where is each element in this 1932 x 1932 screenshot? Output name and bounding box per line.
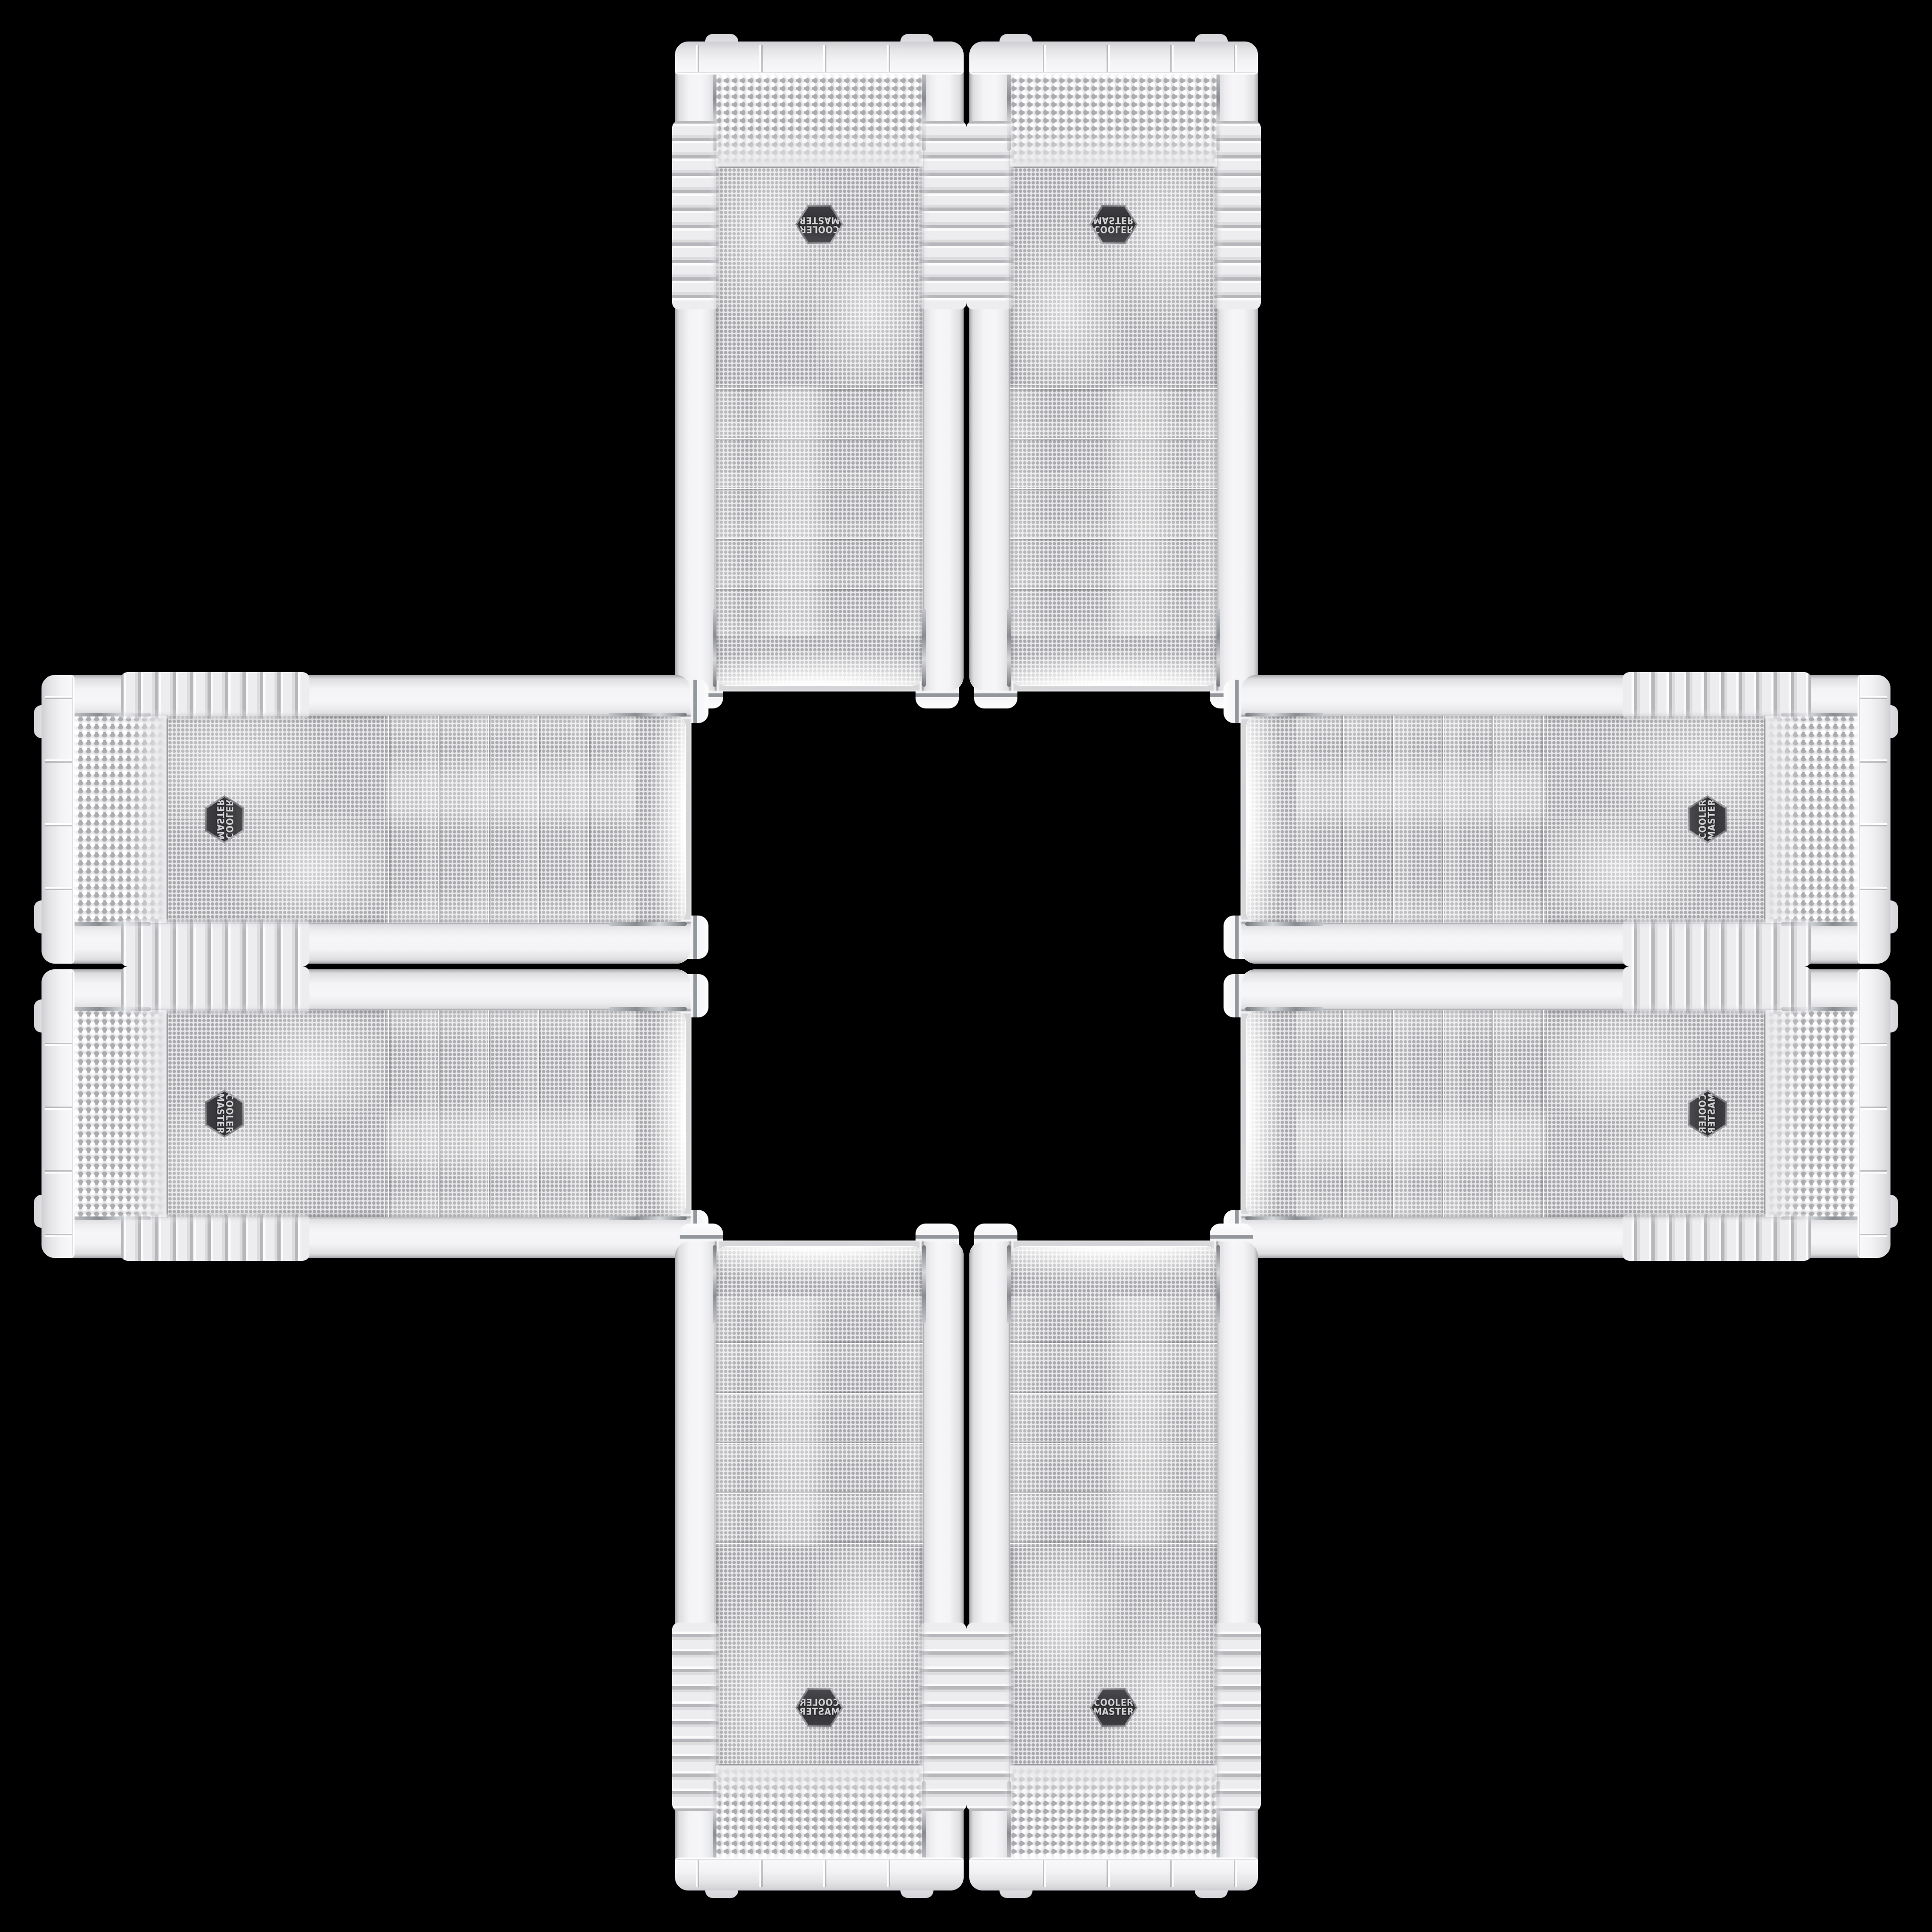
pc-case: COOLER MASTER	[675, 42, 964, 691]
chrome-trim-top-right	[713, 609, 716, 687]
side-grip-ribs-left	[919, 121, 966, 309]
pc-case: COOLER MASTER	[969, 42, 1258, 691]
cooler-master-logo-icon: COOLER MASTER	[207, 797, 242, 841]
side-grip-ribs-right	[1214, 1623, 1261, 1811]
cooler-master-logo-icon: COOLER MASTER	[1091, 207, 1136, 242]
drive-bay-strips	[1296, 716, 1546, 923]
logo-text-line1: COOLER	[799, 224, 839, 234]
side-grip-ribs-left	[966, 1623, 1014, 1811]
mesh-panel	[1246, 716, 1857, 923]
cooler-master-logo-icon: COOLER MASTER	[797, 1690, 841, 1725]
drive-bay-strips	[386, 716, 636, 923]
chrome-trim-top-left	[922, 1245, 926, 1323]
chrome-trim-top-right	[609, 1216, 687, 1220]
logo-text-line1: COOLER	[1094, 224, 1133, 234]
fan-mesh-area	[1546, 1010, 1764, 1217]
logo-text-line1: COOLER	[224, 799, 234, 839]
mesh-top-dome-highlight	[1246, 1010, 1298, 1217]
coarse-mesh-section	[75, 1010, 166, 1217]
segmented-bottom-cap	[1857, 675, 1890, 964]
logo-text-line2: MASTER	[215, 1093, 225, 1134]
segmented-bottom-cap	[1857, 969, 1890, 1258]
segmented-bottom-cap	[675, 42, 964, 75]
side-grip-ribs-right	[121, 1214, 309, 1261]
case-tile-bottom-left: COOLER MASTER	[675, 1241, 964, 1890]
fan-mesh-area	[1010, 1546, 1217, 1764]
chrome-trim-top-left	[609, 1007, 687, 1011]
side-grip-ribs-right	[1623, 1214, 1811, 1261]
case-tile-top-right: COOLER MASTER	[969, 42, 1258, 691]
side-grip-ribs-left	[966, 121, 1014, 309]
fan-mesh-area	[1010, 168, 1217, 386]
chrome-trim-top-left	[922, 609, 926, 687]
chrome-trim-top-left	[1245, 1007, 1323, 1011]
mesh-chrome-seam	[716, 166, 923, 168]
side-grip-ribs-left	[1623, 966, 1811, 1014]
coarse-mesh-section	[1010, 1766, 1217, 1857]
logo-text-line2: MASTER	[1707, 1093, 1717, 1134]
fan-mesh-area	[716, 168, 923, 386]
mesh-top-dome-highlight	[1010, 1246, 1217, 1298]
coarse-mesh-section	[1766, 716, 1857, 923]
pc-case: COOLER MASTER	[42, 675, 691, 964]
pc-case: COOLER MASTER	[1241, 969, 1890, 1258]
coarse-mesh-section	[1766, 1010, 1857, 1217]
segmented-bottom-cap	[42, 969, 75, 1258]
fan-mesh-area	[168, 1010, 386, 1217]
mesh-top-dome-highlight	[1010, 634, 1217, 686]
logo-text-line2: MASTER	[215, 799, 225, 840]
cooler-master-logo-icon: COOLER MASTER	[1690, 797, 1725, 841]
chrome-trim-top-left	[1245, 922, 1323, 926]
fan-mesh-area	[1546, 716, 1764, 923]
mesh-top-dome-highlight	[716, 634, 923, 686]
segmented-bottom-cap	[675, 1857, 964, 1890]
chrome-trim-top-right	[1216, 1245, 1220, 1323]
mesh-top-dome-highlight	[634, 1010, 686, 1217]
mesh-chrome-seam	[1010, 166, 1217, 168]
mesh-panel	[1246, 1010, 1857, 1217]
segmented-bottom-cap	[969, 42, 1258, 75]
coarse-mesh-section	[75, 716, 166, 923]
cooler-master-logo-icon: COOLER MASTER	[1091, 1690, 1136, 1725]
mesh-panel	[1010, 75, 1217, 686]
pc-case: COOLER MASTER	[675, 1241, 964, 1890]
cooler-master-logo-icon: COOLER MASTER	[207, 1091, 242, 1136]
drive-bay-strips	[1010, 386, 1217, 636]
chrome-trim-top-left	[1007, 1245, 1011, 1323]
logo-text-line2: MASTER	[1093, 1707, 1134, 1717]
logo-text-line2: MASTER	[1093, 215, 1134, 225]
side-grip-ribs-left	[1623, 919, 1811, 966]
mesh-panel	[75, 1010, 686, 1217]
side-grip-ribs-right	[121, 672, 309, 719]
chrome-trim-top-right	[1216, 609, 1220, 687]
side-grip-ribs-right	[672, 121, 719, 309]
chrome-trim-top-right	[713, 1245, 716, 1323]
cooler-master-logo-icon: COOLER MASTER	[1690, 1091, 1725, 1136]
mesh-panel	[75, 716, 686, 923]
logo-text-line2: MASTER	[799, 215, 840, 225]
logo-text-line2: MASTER	[799, 1707, 840, 1717]
drive-bay-strips	[716, 1296, 923, 1546]
cooler-master-logo-icon: COOLER MASTER	[797, 207, 841, 242]
case-tile-right-bottom: COOLER MASTER	[1241, 969, 1890, 1258]
drive-bay-strips	[386, 1010, 636, 1217]
mesh-top-dome-highlight	[634, 716, 686, 923]
case-tile-top-left: COOLER MASTER	[675, 42, 964, 691]
chrome-trim-top-right	[609, 713, 687, 716]
side-grip-ribs-right	[672, 1623, 719, 1811]
coarse-mesh-section	[716, 75, 923, 166]
product-collage-canvas: COOLER MASTER	[0, 0, 1932, 1932]
mesh-panel	[716, 1246, 923, 1857]
segmented-bottom-cap	[42, 675, 75, 964]
side-grip-ribs-left	[121, 919, 309, 966]
case-tile-left-bottom: COOLER MASTER	[42, 969, 691, 1258]
side-grip-ribs-right	[1623, 672, 1811, 719]
mesh-panel	[1010, 1246, 1217, 1857]
chrome-trim-top-right	[1245, 1216, 1323, 1220]
mesh-top-dome-highlight	[1246, 716, 1298, 923]
coarse-mesh-section	[1010, 75, 1217, 166]
fan-mesh-area	[168, 716, 386, 923]
logo-text-line1: COOLER	[224, 1094, 234, 1133]
mesh-chrome-seam	[166, 1010, 168, 1217]
chrome-trim-top-left	[609, 922, 687, 926]
logo-text-line2: MASTER	[1707, 799, 1717, 840]
side-grip-ribs-left	[919, 1623, 966, 1811]
chrome-trim-top-right	[1245, 713, 1323, 716]
side-grip-ribs-left	[121, 966, 309, 1014]
pc-case: COOLER MASTER	[42, 969, 691, 1258]
mesh-panel	[716, 75, 923, 686]
pc-case: COOLER MASTER	[969, 1241, 1258, 1890]
side-grip-ribs-right	[1214, 121, 1261, 309]
case-tile-bottom-right: COOLER MASTER	[969, 1241, 1258, 1890]
fan-mesh-area	[716, 1546, 923, 1764]
case-tile-right-top: COOLER MASTER	[1241, 675, 1890, 964]
mesh-chrome-seam	[166, 716, 168, 923]
case-tile-left-top: COOLER MASTER	[42, 675, 691, 964]
pc-case: COOLER MASTER	[1241, 675, 1890, 964]
drive-bay-strips	[1010, 1296, 1217, 1546]
coarse-mesh-section	[716, 1766, 923, 1857]
drive-bay-strips	[1296, 1010, 1546, 1217]
drive-bay-strips	[716, 386, 923, 636]
segmented-bottom-cap	[969, 1857, 1258, 1890]
chrome-trim-top-left	[1007, 609, 1011, 687]
mesh-top-dome-highlight	[716, 1246, 923, 1298]
